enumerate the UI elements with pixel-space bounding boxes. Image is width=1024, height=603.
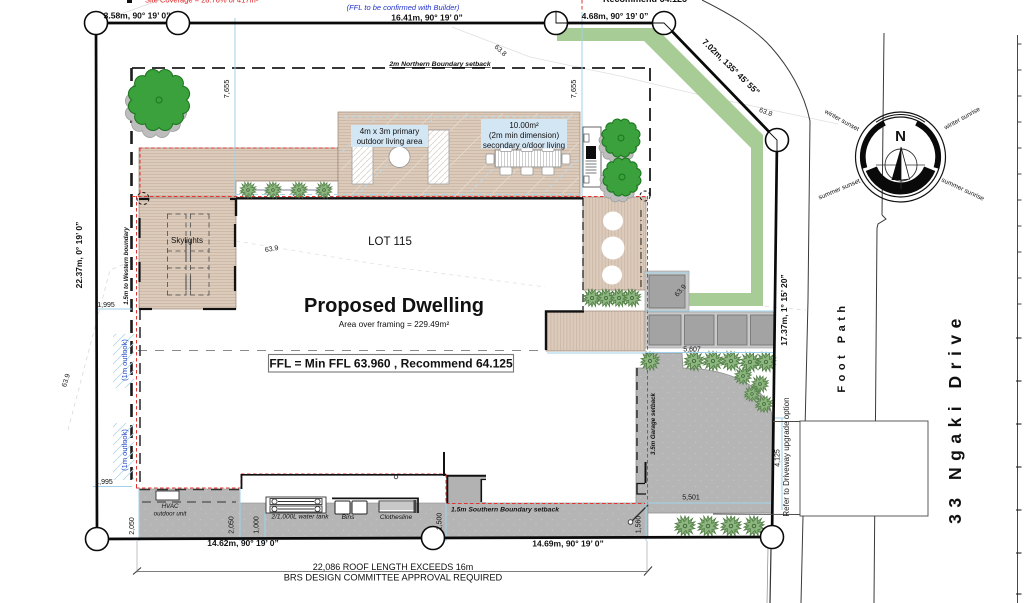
svg-text:Site Coverage = 28.76% of 417m: Site Coverage = 28.76% of 417m² [145,0,259,5]
svg-text:2/1,000L water tank: 2/1,000L water tank [271,514,330,521]
svg-text:1,000: 1,000 [254,516,261,534]
svg-text:2,050: 2,050 [129,517,136,535]
svg-text:N: N [895,128,906,145]
svg-text:2,050: 2,050 [229,516,236,534]
svg-text:Proposed Dwelling: Proposed Dwelling [304,295,484,317]
svg-text:22,086 ROOF LENGTH EXCEEDS 16m: 22,086 ROOF LENGTH EXCEEDS 16m [313,562,474,572]
svg-text:17.37m, 1° 15’ 20”: 17.37m, 1° 15’ 20” [779,274,789,345]
svg-text:1,995: 1,995 [97,302,115,309]
svg-text:(FFL to be confirmed with Buil: (FFL to be confirmed with Builder) [347,3,460,12]
svg-text:(1m outlook): (1m outlook) [120,339,129,381]
svg-text:(2m min dimension): (2m min dimension) [489,131,560,140]
svg-text:Area over framing = 229.49m²: Area over framing = 229.49m² [339,319,450,329]
svg-text:Bins: Bins [342,514,355,521]
svg-text:FFL = Min FFL 63.960 , Recomme: FFL = Min FFL 63.960 , Recommend 64.125 [269,357,513,371]
svg-text:2m Northern Boundary setback: 2m Northern Boundary setback [388,61,491,68]
svg-text:outdoor unit: outdoor unit [154,511,187,518]
svg-text:5,501: 5,501 [682,495,700,502]
svg-text:1.5m Southern Boundary setback: 1.5m Southern Boundary setback [451,507,560,514]
svg-text:3.5m Garage setback: 3.5m Garage setback [650,392,657,454]
svg-text:7,655: 7,655 [569,80,578,99]
svg-text:1,995: 1,995 [95,479,113,486]
svg-text:4,125: 4,125 [775,449,782,467]
svg-text:Clothesline: Clothesline [380,514,413,521]
svg-text:22.37m, 0° 19’ 0”: 22.37m, 0° 19’ 0” [74,222,84,289]
svg-text:1,560: 1,560 [636,516,643,534]
svg-text:16.41m, 90° 19’ 0”: 16.41m, 90° 19’ 0” [391,13,462,23]
svg-text:Skylights: Skylights [171,236,203,245]
svg-text:Recommend 64.125: Recommend 64.125 [603,0,687,4]
svg-text:HVAC: HVAC [162,503,179,510]
svg-text:5,607: 5,607 [683,347,701,354]
svg-text:secondary o/door living: secondary o/door living [483,141,565,150]
svg-text:7,655: 7,655 [222,80,231,99]
svg-text:BRS DESIGN COMMITTEE APPROVAL: BRS DESIGN COMMITTEE APPROVAL REQUIRED [284,573,503,583]
svg-text:4.68m, 90° 19’ 0”: 4.68m, 90° 19’ 0” [582,11,649,21]
svg-text:4m x 3m primary: 4m x 3m primary [360,127,420,136]
svg-text:10.00m²: 10.00m² [509,121,539,130]
svg-text:(1m outlook): (1m outlook) [120,429,129,471]
svg-text:14.62m, 90° 19’ 0”: 14.62m, 90° 19’ 0” [207,538,278,548]
svg-text:Foot Path: Foot Path [836,301,848,392]
svg-text:33 Ngaki Drive: 33 Ngaki Drive [945,312,965,524]
svg-text:1.5m to Western boundary: 1.5m to Western boundary [123,227,130,305]
svg-text:14.69m, 90° 19’ 0”: 14.69m, 90° 19’ 0” [532,539,603,549]
svg-text:1,500: 1,500 [437,513,444,531]
svg-text:Refer to Driveway upgrade opti: Refer to Driveway upgrade option [782,397,791,516]
svg-text:outdoor living area: outdoor living area [357,137,423,146]
svg-text:3.58m, 90° 19’ 0”: 3.58m, 90° 19’ 0” [104,11,171,21]
svg-text:LOT 115: LOT 115 [368,236,412,248]
